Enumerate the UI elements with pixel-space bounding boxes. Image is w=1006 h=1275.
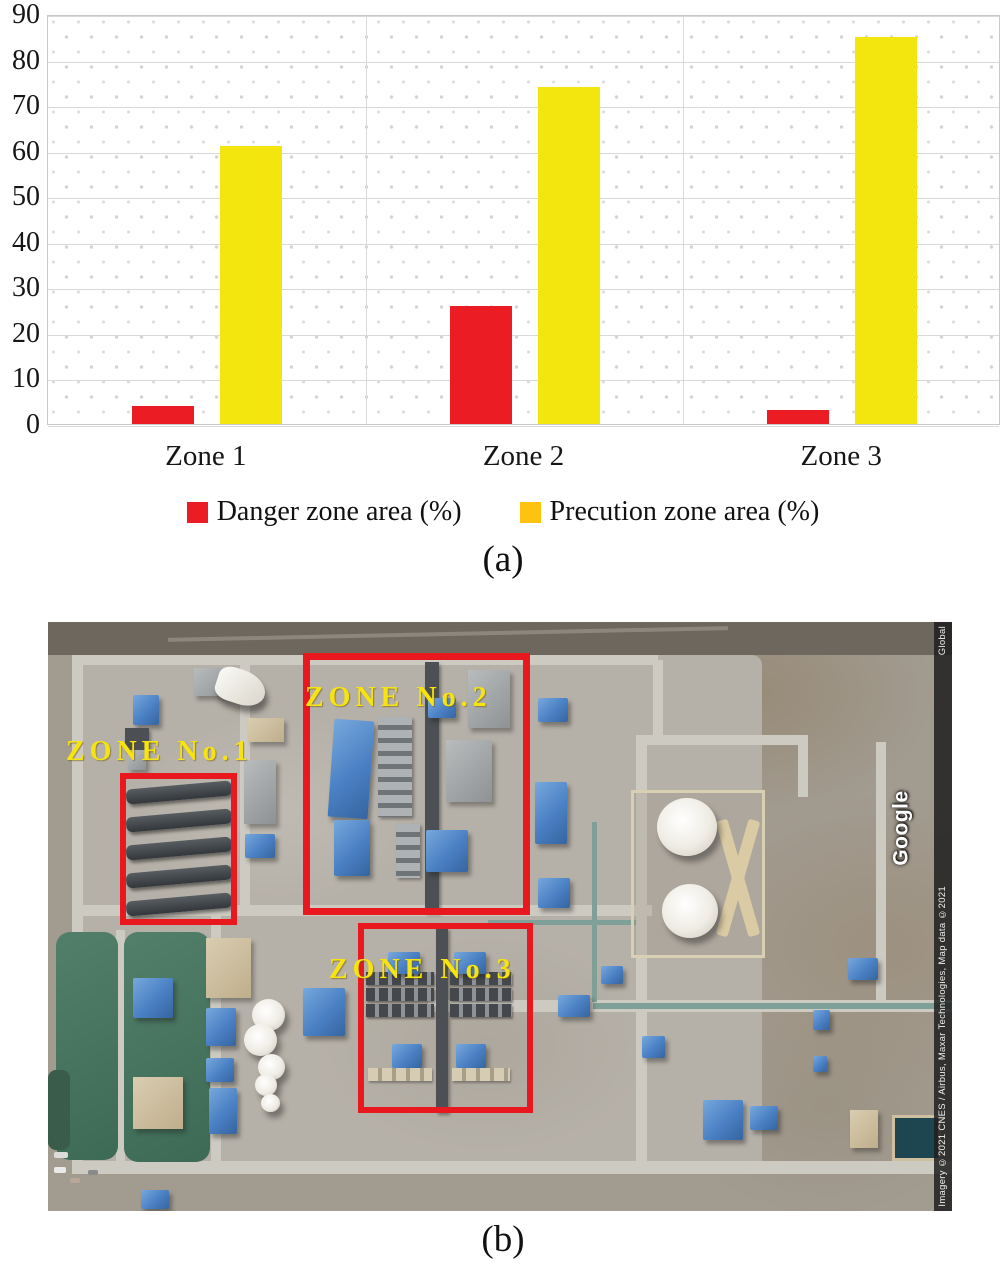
satellite-map: ZONE No.1 ZONE No.2 ZONE No.3 Google Ima… [48, 622, 952, 1211]
legend-swatch-danger [187, 502, 208, 523]
building [813, 1056, 827, 1072]
vehicle [54, 1152, 68, 1158]
legend-swatch-precaution [520, 502, 541, 523]
building [813, 1010, 830, 1030]
building [750, 1106, 778, 1130]
building [535, 782, 567, 844]
building [558, 995, 590, 1017]
y-tick-label: 0 [0, 411, 40, 439]
bar-precaution-2 [538, 87, 600, 424]
bar-precaution-1 [220, 146, 282, 424]
bar-chart: 9080706050403020100 Zone 1Zone 2Zone 3 D… [0, 0, 1006, 590]
building [601, 966, 623, 984]
road [798, 735, 808, 797]
zone2-label: ZONE No.2 [305, 682, 492, 714]
gridline [683, 16, 684, 424]
zone1-label: ZONE No.1 [66, 736, 253, 768]
building [206, 1058, 234, 1082]
chart-legend: Danger zone area (%) Precution zone area… [0, 496, 1006, 528]
building [133, 978, 173, 1018]
gridline [48, 16, 999, 17]
building [245, 834, 275, 858]
building [703, 1100, 743, 1140]
storage-tank [261, 1094, 280, 1112]
gridline [366, 16, 367, 424]
zone1-box [120, 773, 237, 925]
pipeline [592, 822, 597, 1002]
building [538, 698, 568, 722]
bar-danger-1 [132, 406, 194, 424]
y-tick-label: 20 [0, 320, 40, 348]
road [72, 1161, 952, 1174]
building [850, 1110, 878, 1148]
bar-danger-3 [767, 410, 829, 424]
x-tick-label: Zone 2 [449, 440, 599, 473]
legend-item-danger: Danger zone area (%) [187, 496, 462, 528]
bar-precaution-3 [855, 37, 917, 424]
plot-area [47, 15, 1000, 425]
legend-item-precaution: Precution zone area (%) [520, 496, 820, 528]
building [303, 988, 345, 1036]
y-tick-label: 70 [0, 92, 40, 120]
google-watermark: Google [870, 780, 934, 876]
building [133, 695, 159, 725]
attribution-global: Global [937, 626, 948, 655]
caption-b: (b) [0, 1218, 1006, 1261]
storage-tank [244, 1024, 277, 1056]
y-tick-label: 90 [0, 1, 40, 29]
trees [48, 1070, 70, 1150]
attribution-text: Imagery ©2021 CNES / Airbus, Maxar Techn… [937, 886, 948, 1207]
building [538, 878, 570, 908]
y-tick-label: 60 [0, 138, 40, 166]
legend-label-precaution: Precution zone area (%) [550, 496, 820, 528]
building [133, 1077, 183, 1129]
zone3-box [358, 923, 533, 1113]
building [642, 1036, 665, 1058]
attribution-strip: Imagery ©2021 CNES / Airbus, Maxar Techn… [934, 622, 952, 1211]
building [206, 1008, 236, 1046]
building [206, 938, 251, 998]
y-tick-label: 80 [0, 47, 40, 75]
storage-tank [255, 1074, 277, 1096]
caption-a: (a) [0, 538, 1006, 581]
y-tick-label: 40 [0, 229, 40, 257]
y-tick-label: 10 [0, 365, 40, 393]
storage-tank [657, 798, 717, 856]
x-tick-label: Zone 3 [766, 440, 916, 473]
map-terrain-strip [48, 622, 952, 655]
vehicle [70, 1178, 80, 1183]
legend-label-danger: Danger zone area (%) [217, 496, 462, 528]
pipeline [593, 1003, 951, 1009]
building [848, 958, 878, 980]
building [141, 1190, 169, 1209]
zone3-label: ZONE No.3 [329, 954, 516, 986]
bar-danger-2 [450, 306, 512, 424]
building [244, 760, 276, 824]
road [653, 660, 663, 740]
storage-tank [662, 884, 718, 938]
figure: 9080706050403020100 Zone 1Zone 2Zone 3 D… [0, 0, 1006, 1275]
vehicle [54, 1167, 66, 1173]
building [209, 1088, 237, 1134]
building [248, 718, 284, 742]
vehicle [88, 1170, 98, 1175]
x-tick-label: Zone 1 [131, 440, 281, 473]
y-tick-label: 30 [0, 274, 40, 302]
y-tick-label: 50 [0, 183, 40, 211]
gridline [48, 426, 999, 427]
